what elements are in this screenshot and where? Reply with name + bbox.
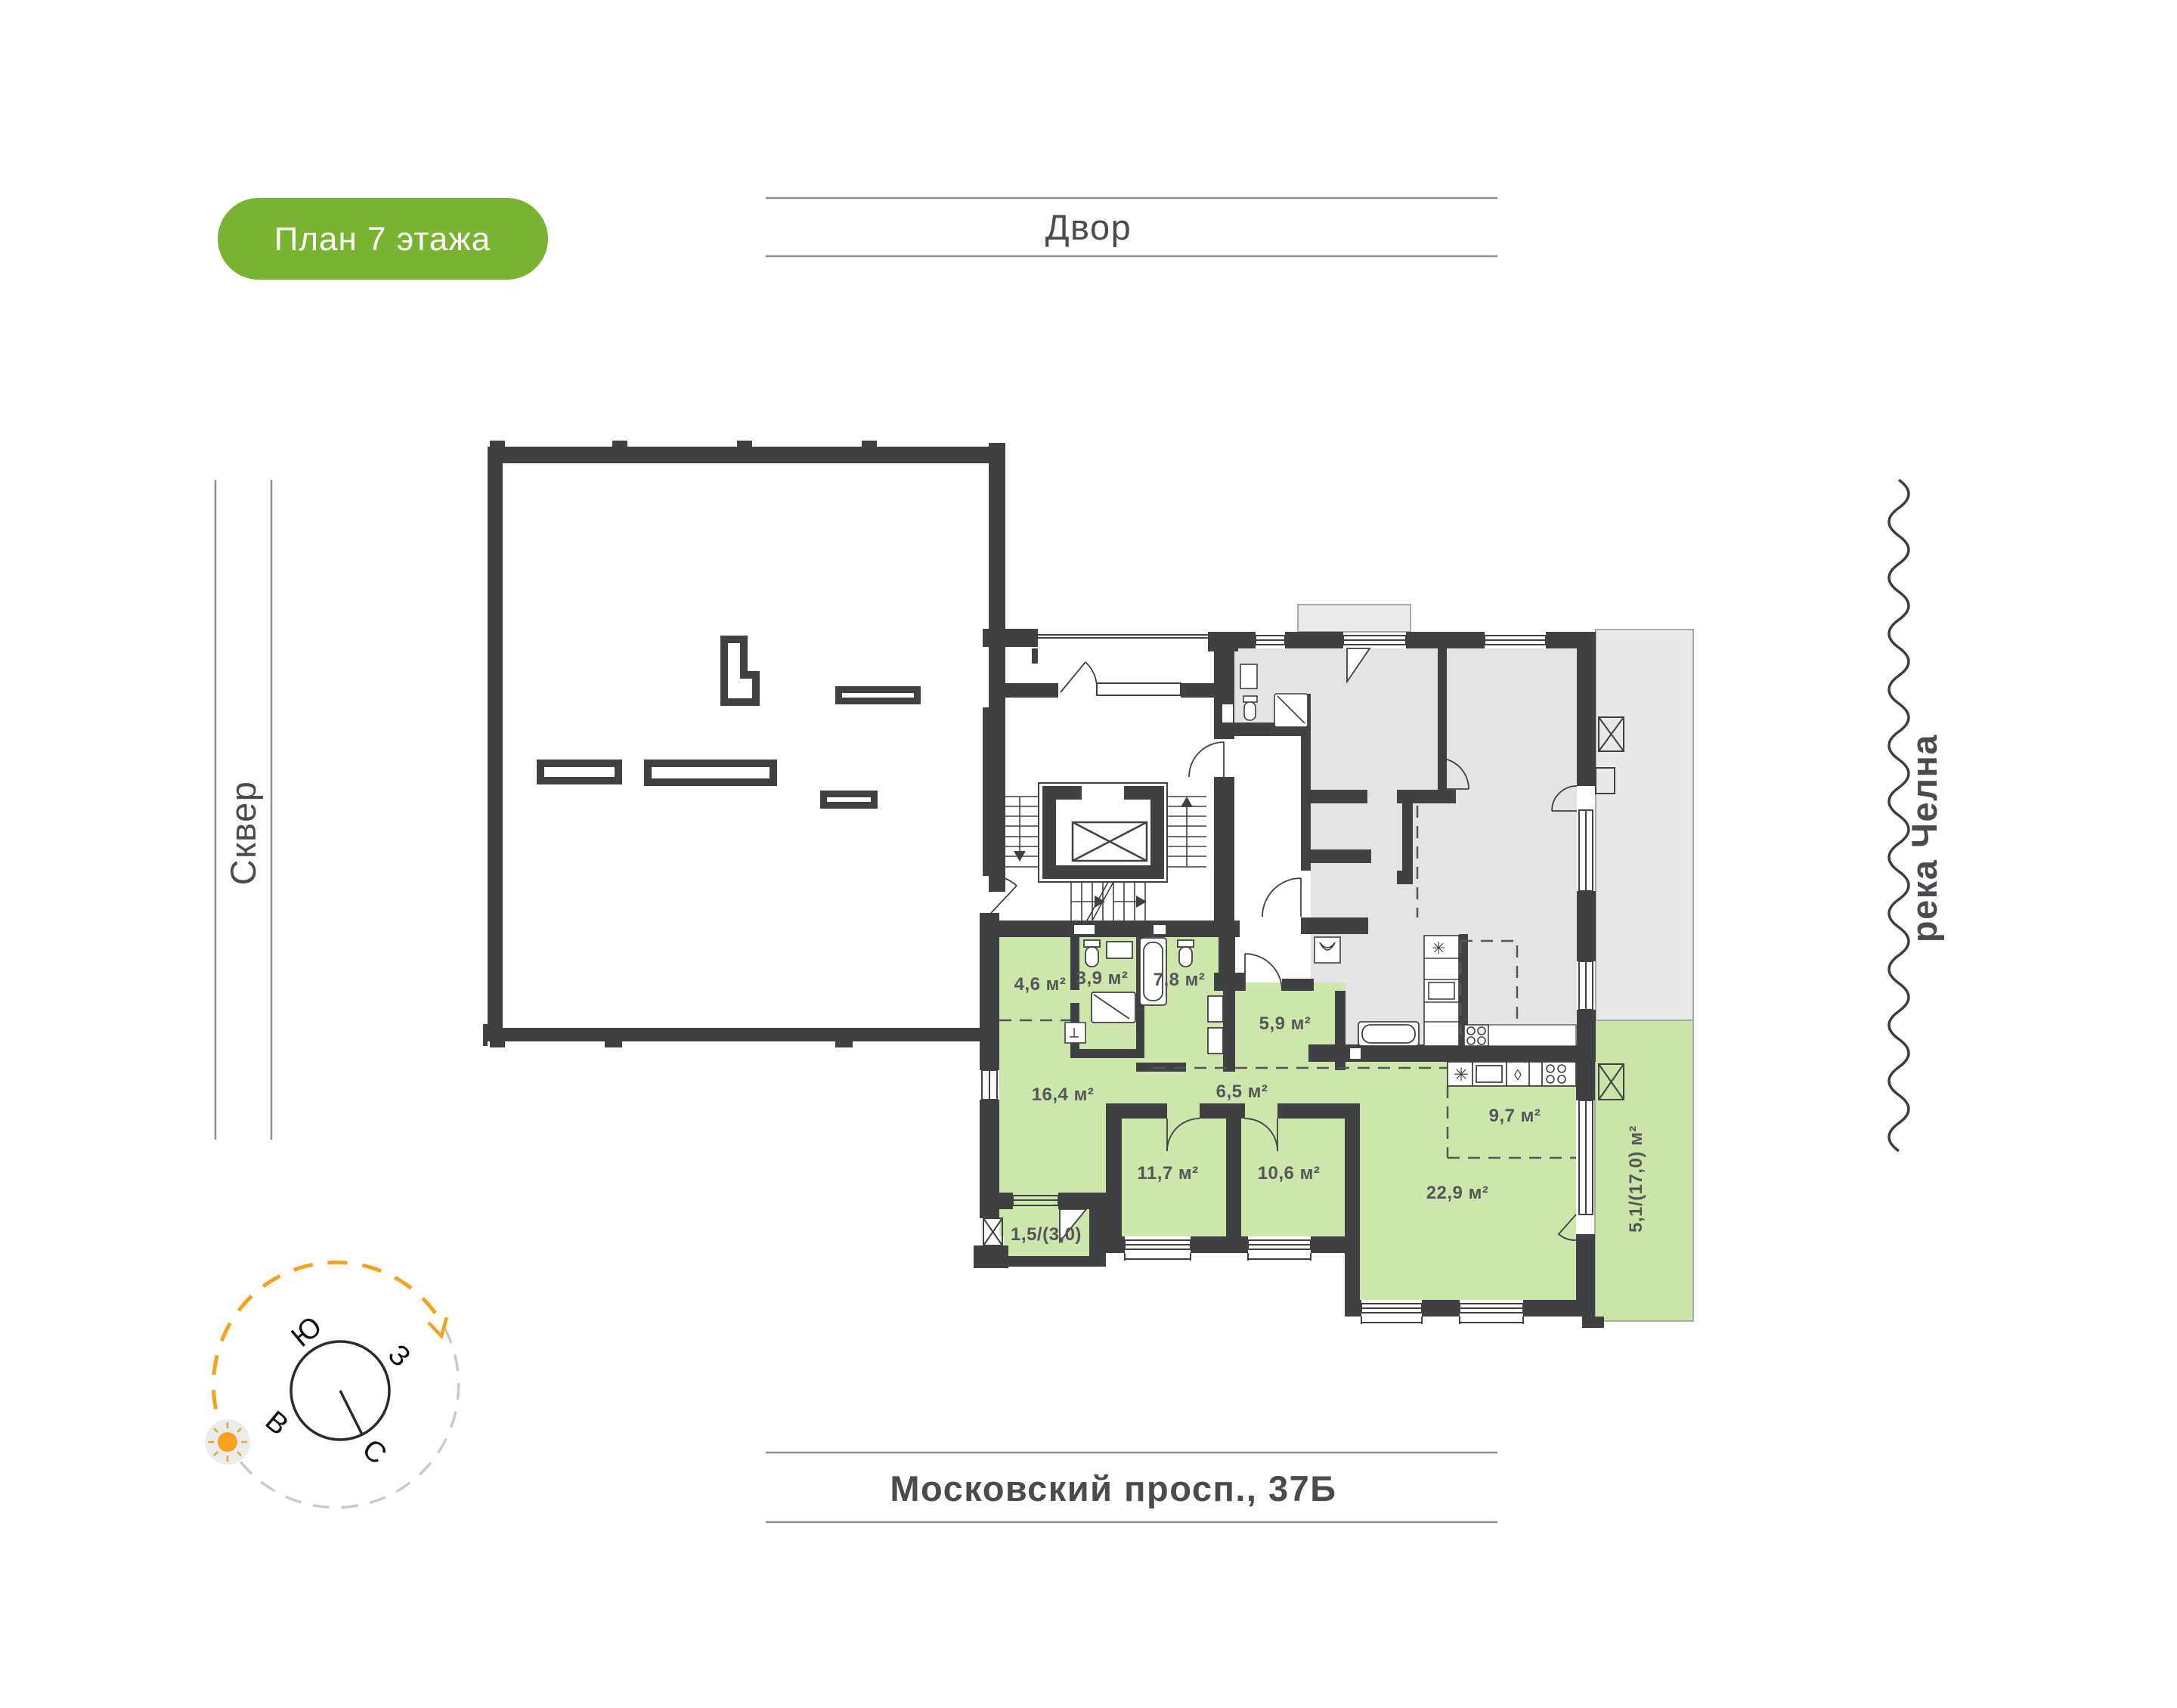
svg-text:9,7 м²: 9,7 м² bbox=[1489, 1106, 1541, 1126]
svg-text:◊: ◊ bbox=[1514, 1067, 1522, 1084]
svg-text:10,6 м²: 10,6 м² bbox=[1258, 1163, 1321, 1184]
svg-text:11,7 м²: 11,7 м² bbox=[1137, 1163, 1198, 1184]
svg-text:1,5/(3,0): 1,5/(3,0) bbox=[1011, 1224, 1082, 1245]
svg-text:Московский просп., 37Б: Московский просп., 37Б bbox=[890, 1468, 1336, 1508]
svg-text:Сквер: Сквер bbox=[223, 781, 263, 886]
svg-text:✳: ✳ bbox=[1432, 939, 1445, 958]
svg-text:6,5 м²: 6,5 м² bbox=[1216, 1081, 1268, 1102]
svg-text:5,1/(17,0) м²: 5,1/(17,0) м² bbox=[1626, 1125, 1646, 1233]
svg-text:Двор: Двор bbox=[1045, 207, 1132, 247]
svg-text:4,6 м²: 4,6 м² bbox=[1014, 974, 1067, 995]
svg-text:22,9 м²: 22,9 м² bbox=[1426, 1183, 1489, 1203]
svg-text:План 7 этажа: План 7 этажа bbox=[274, 221, 491, 258]
svg-text:7,8 м²: 7,8 м² bbox=[1154, 970, 1206, 990]
svg-text:река Челна: река Челна bbox=[1904, 734, 1944, 942]
svg-text:16,4 м²: 16,4 м² bbox=[1032, 1085, 1095, 1105]
svg-text:5,9 м²: 5,9 м² bbox=[1259, 1013, 1311, 1034]
svg-text:3,9 м²: 3,9 м² bbox=[1076, 968, 1129, 989]
svg-text:✳: ✳ bbox=[1454, 1065, 1469, 1085]
